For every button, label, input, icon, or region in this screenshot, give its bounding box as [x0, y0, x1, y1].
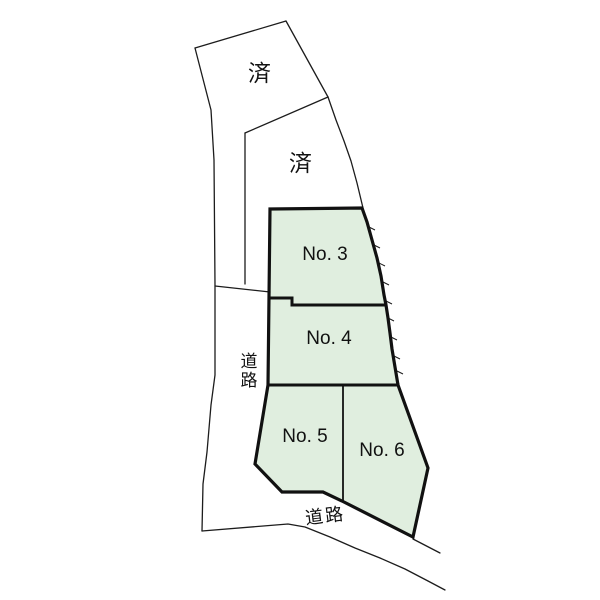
outer-right-curve-line — [328, 97, 363, 208]
road-corridor-line — [215, 286, 270, 292]
lot-map-canvas: 済 済 No. 3 No. 4 No. 5 No. 6 道路 道路 — [0, 0, 600, 600]
outer-right-upper-line — [286, 21, 328, 97]
lot-no5-area — [255, 385, 343, 501]
lot-no4-area — [268, 298, 398, 385]
outer-top-edge-line — [195, 21, 286, 48]
outer-left-boundary-line — [195, 48, 215, 531]
lot-map-drawing — [0, 0, 600, 600]
bottom-road-lower-edge-line — [413, 539, 440, 553]
lot-fills — [255, 208, 428, 537]
lot-no6-area — [342, 385, 428, 537]
sold-lots-divider-line — [245, 97, 328, 133]
